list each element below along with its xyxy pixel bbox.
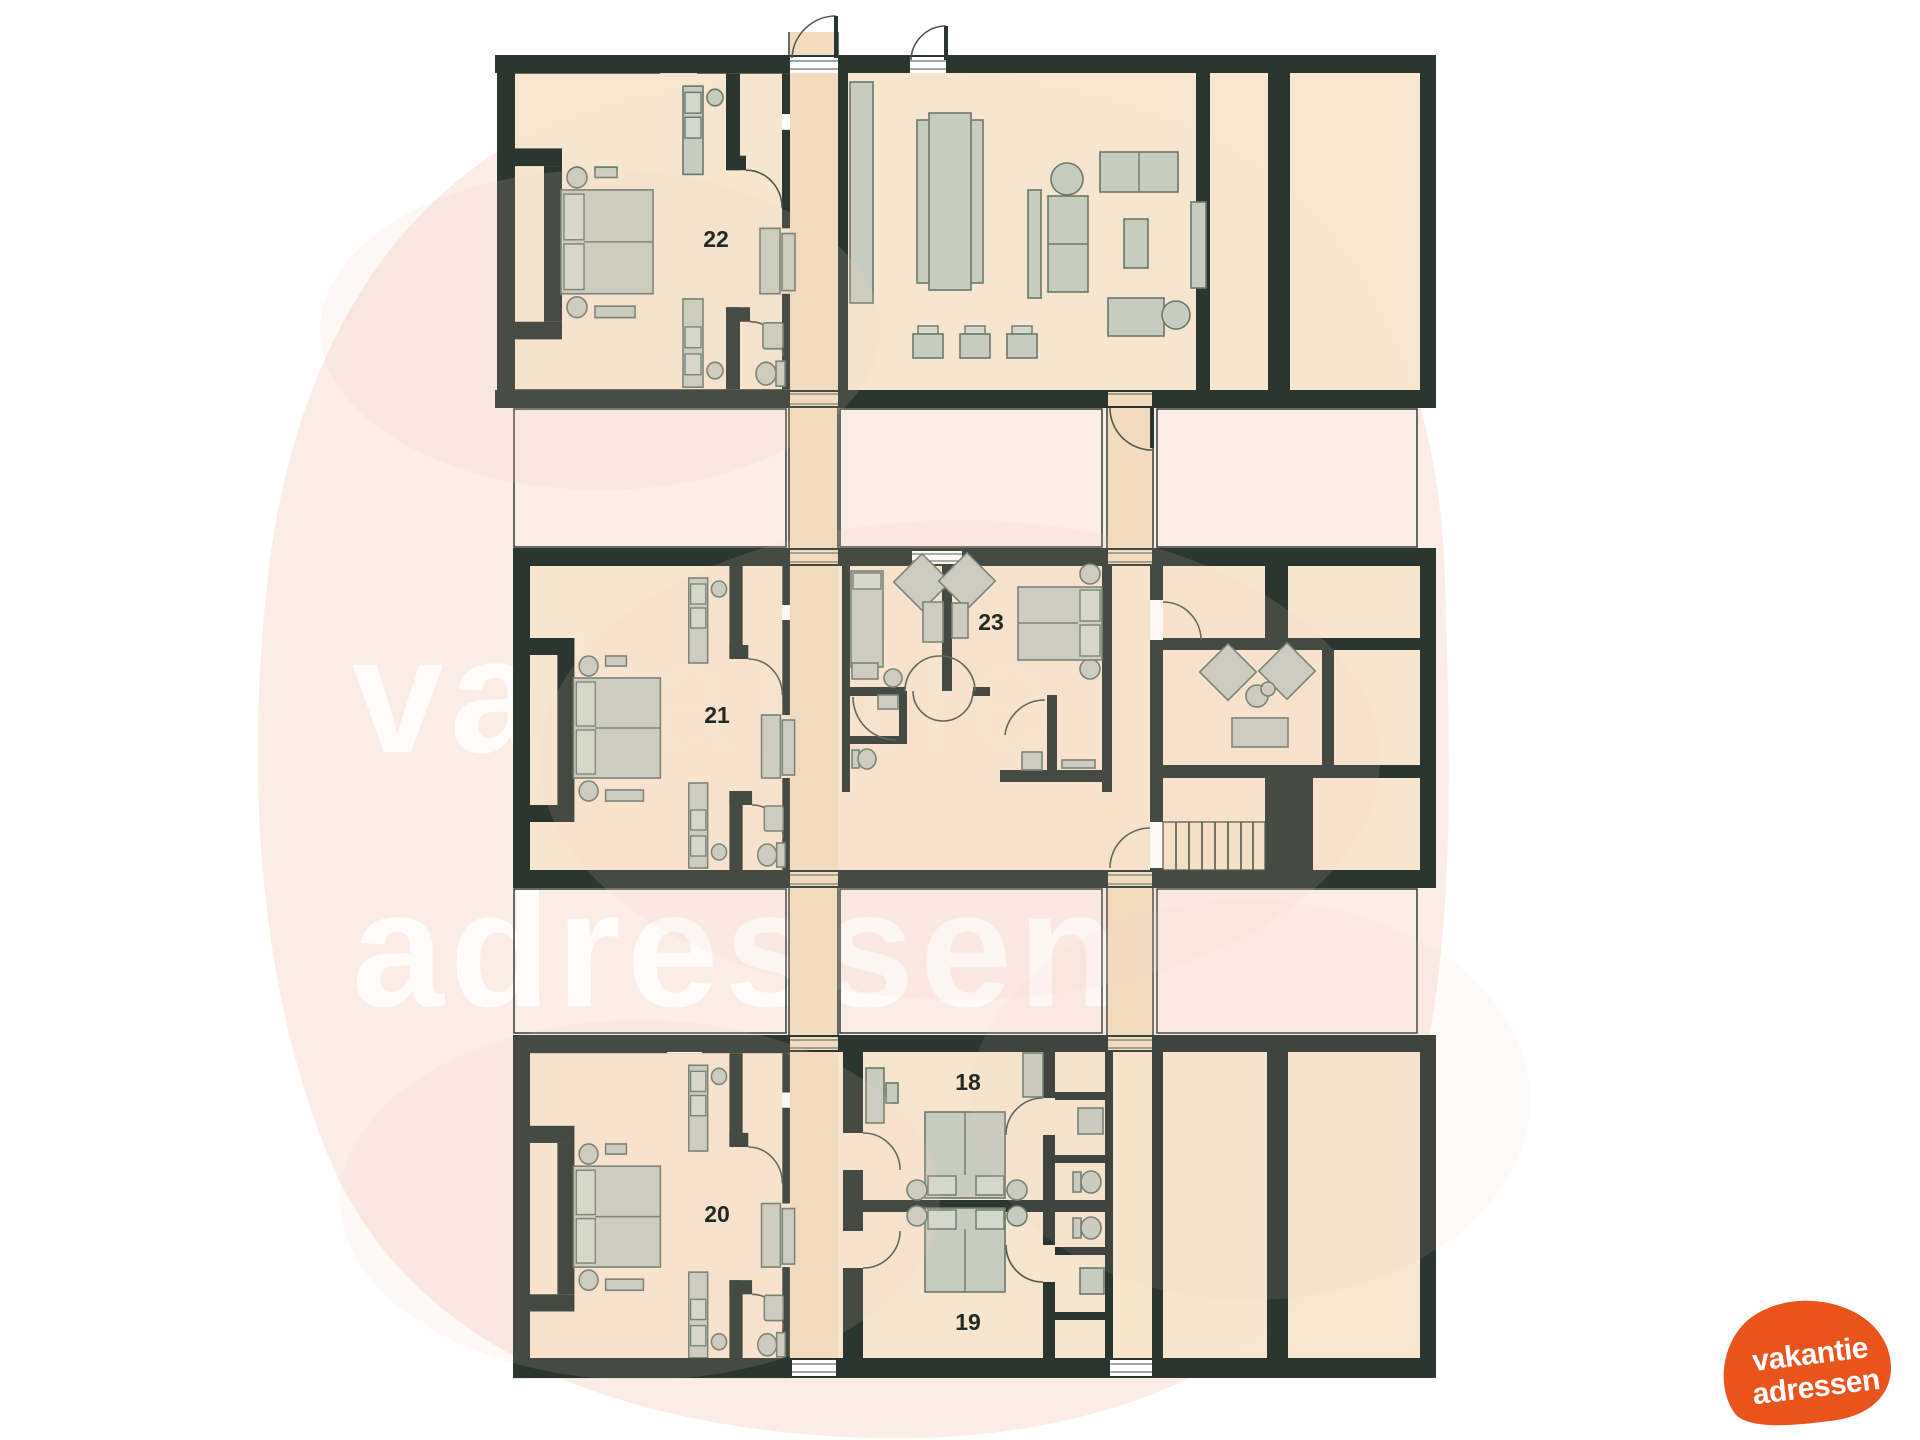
sofa-side: [1028, 190, 1041, 298]
floorplan-page: vakantie adressen: [0, 0, 1920, 1440]
room-label-19: 19: [955, 1309, 981, 1335]
room-label-18: 18: [955, 1069, 981, 1095]
room-label-21: 21: [704, 702, 730, 728]
room-label-23: 23: [978, 609, 1004, 635]
logo: vakantie adressen: [1724, 1301, 1891, 1425]
dining-table-top: [929, 113, 971, 290]
side-table: [1051, 163, 1083, 195]
room-label-22: 22: [703, 226, 729, 252]
shower: [1080, 1268, 1104, 1294]
dining-chair: [960, 326, 990, 358]
living-door-arc: [911, 26, 946, 60]
room-label-20: 20: [704, 1201, 730, 1227]
dining-chair: [913, 326, 943, 358]
armchair: [1124, 219, 1148, 268]
wall-shelf: [1191, 202, 1206, 288]
low-table: [1108, 298, 1164, 336]
pouf: [1162, 301, 1190, 329]
floorplan-canvas: vakantie adressen: [0, 0, 1920, 1440]
dining-chair: [1007, 326, 1037, 358]
